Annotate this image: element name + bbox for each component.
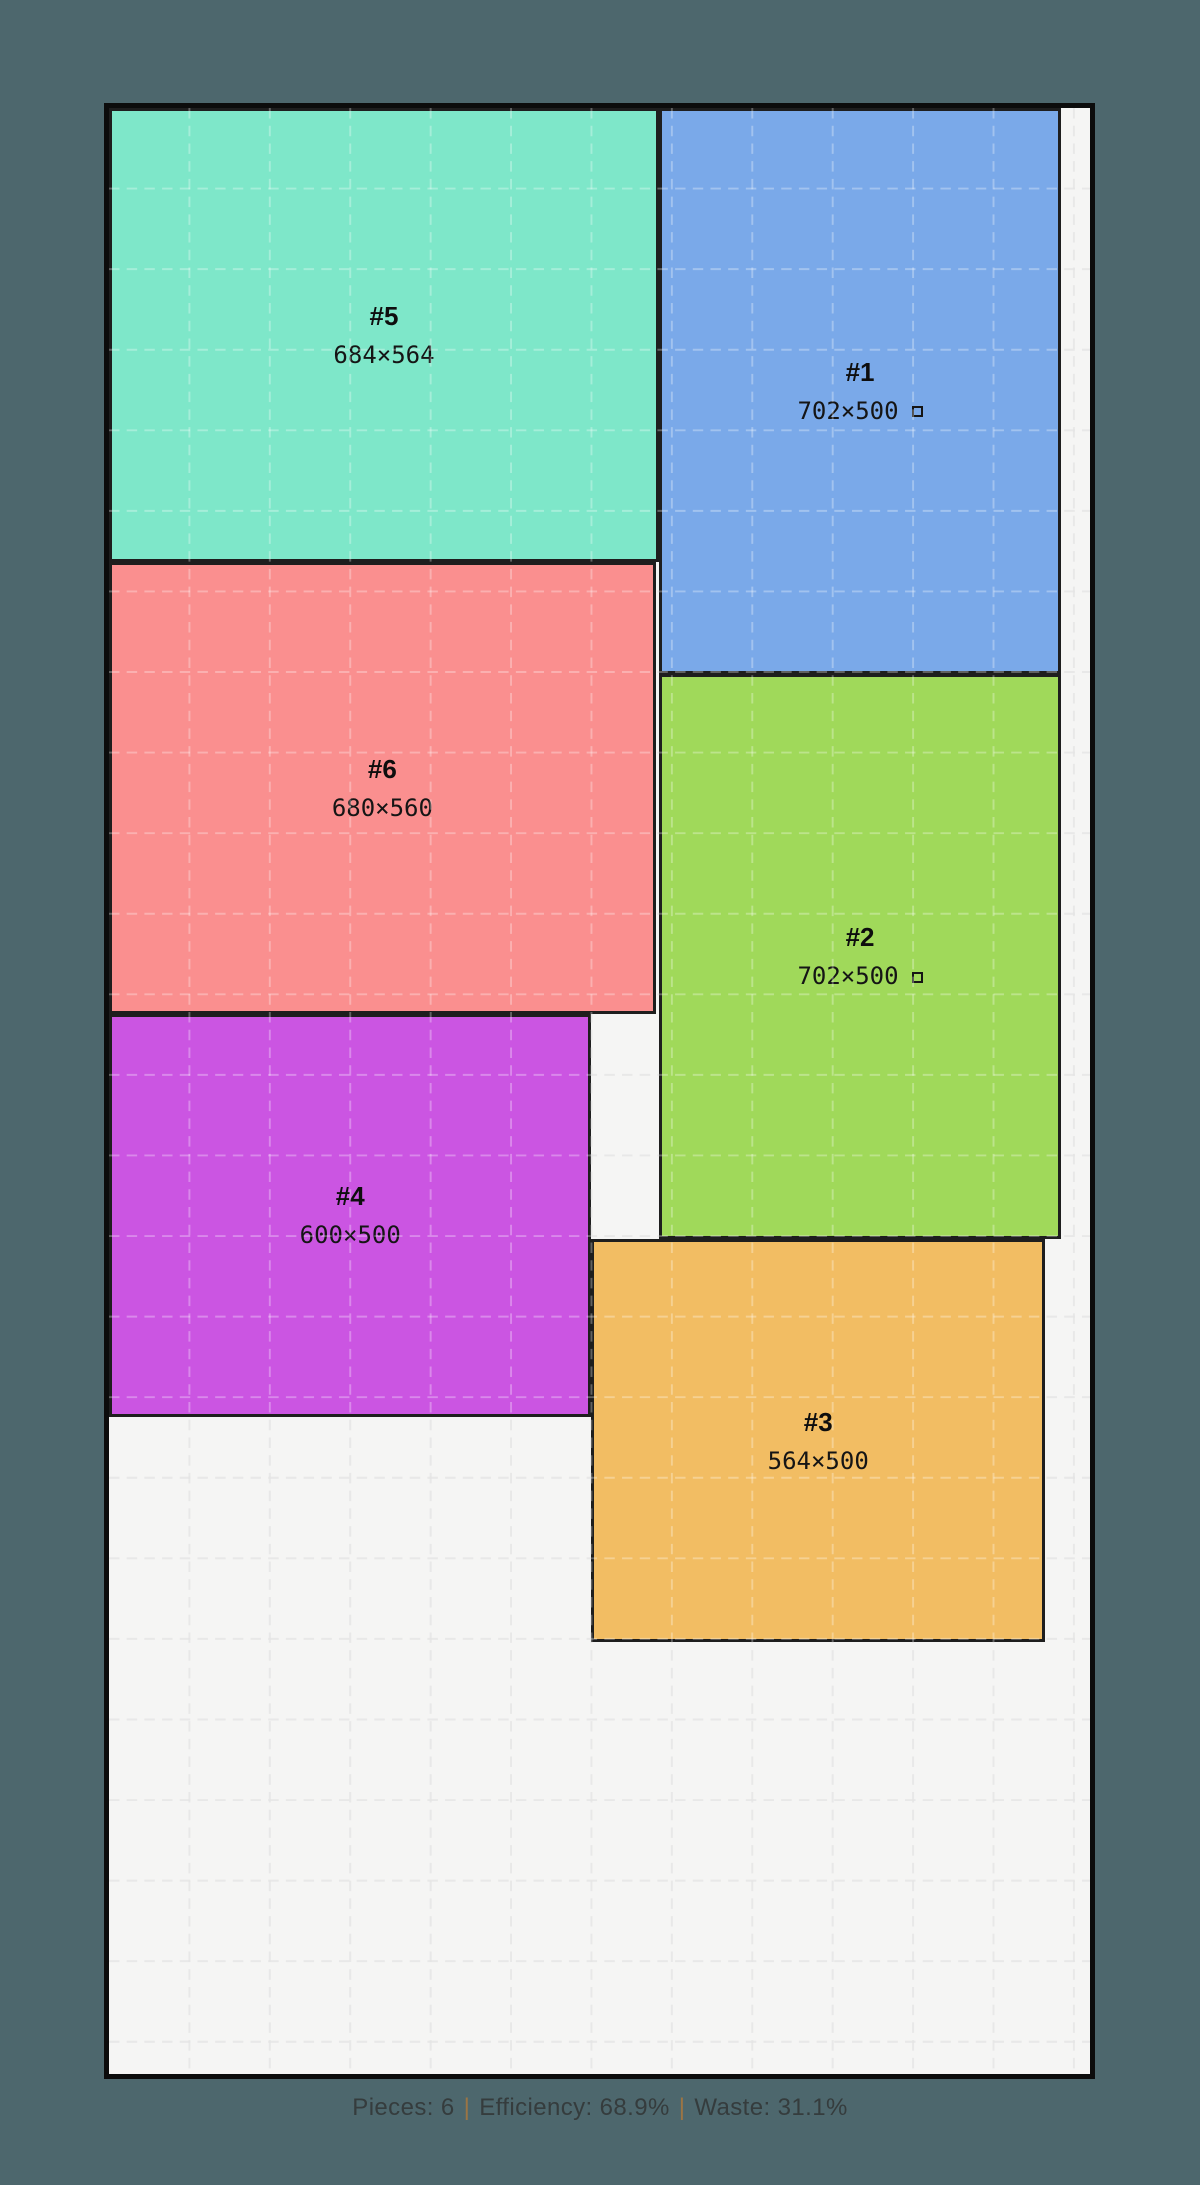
stat-pieces: Pieces: 6 <box>352 2094 454 2121</box>
piece-id-label: #1 <box>846 359 875 385</box>
piece-rect-3[interactable]: #3564×500 <box>591 1239 1045 1642</box>
piece-dimensions-label: 684×564 <box>333 343 434 367</box>
rotated-indicator-icon <box>912 972 923 983</box>
piece-id-label: #5 <box>370 303 399 329</box>
piece-id-label: #3 <box>804 1409 833 1435</box>
stat-separator: | <box>679 2094 686 2121</box>
piece-id-label: #4 <box>336 1183 365 1209</box>
piece-id-label: #6 <box>368 756 397 782</box>
pieces-layer: #5684×564#1702×500#6680×560#2702×500#460… <box>109 108 1090 2074</box>
piece-dimensions-label: 680×560 <box>332 796 433 820</box>
cutting-layout-view: #5684×564#1702×500#6680×560#2702×500#460… <box>0 0 1200 2185</box>
sheet: #5684×564#1702×500#6680×560#2702×500#460… <box>104 103 1095 2079</box>
piece-rect-4[interactable]: #4600×500 <box>109 1014 591 1417</box>
piece-dimensions-label: 564×500 <box>768 1449 869 1473</box>
rotated-indicator-icon <box>912 406 923 417</box>
stat-waste: Waste: 31.1% <box>694 2094 847 2121</box>
piece-dimensions-label: 702×500 <box>797 399 922 423</box>
piece-id-label: #2 <box>846 924 875 950</box>
piece-rect-6[interactable]: #6680×560 <box>109 562 656 1013</box>
piece-rect-2[interactable]: #2702×500 <box>659 674 1061 1240</box>
stat-separator: | <box>464 2094 471 2121</box>
piece-rect-5[interactable]: #5684×564 <box>109 108 659 562</box>
piece-dimensions-label: 600×500 <box>300 1223 401 1247</box>
piece-rect-1[interactable]: #1702×500 <box>659 108 1061 674</box>
stats-bar: Pieces: 6|Efficiency: 68.9%|Waste: 31.1% <box>0 2094 1200 2122</box>
stat-efficiency: Efficiency: 68.9% <box>479 2094 669 2121</box>
piece-dimensions-label: 702×500 <box>797 964 922 988</box>
